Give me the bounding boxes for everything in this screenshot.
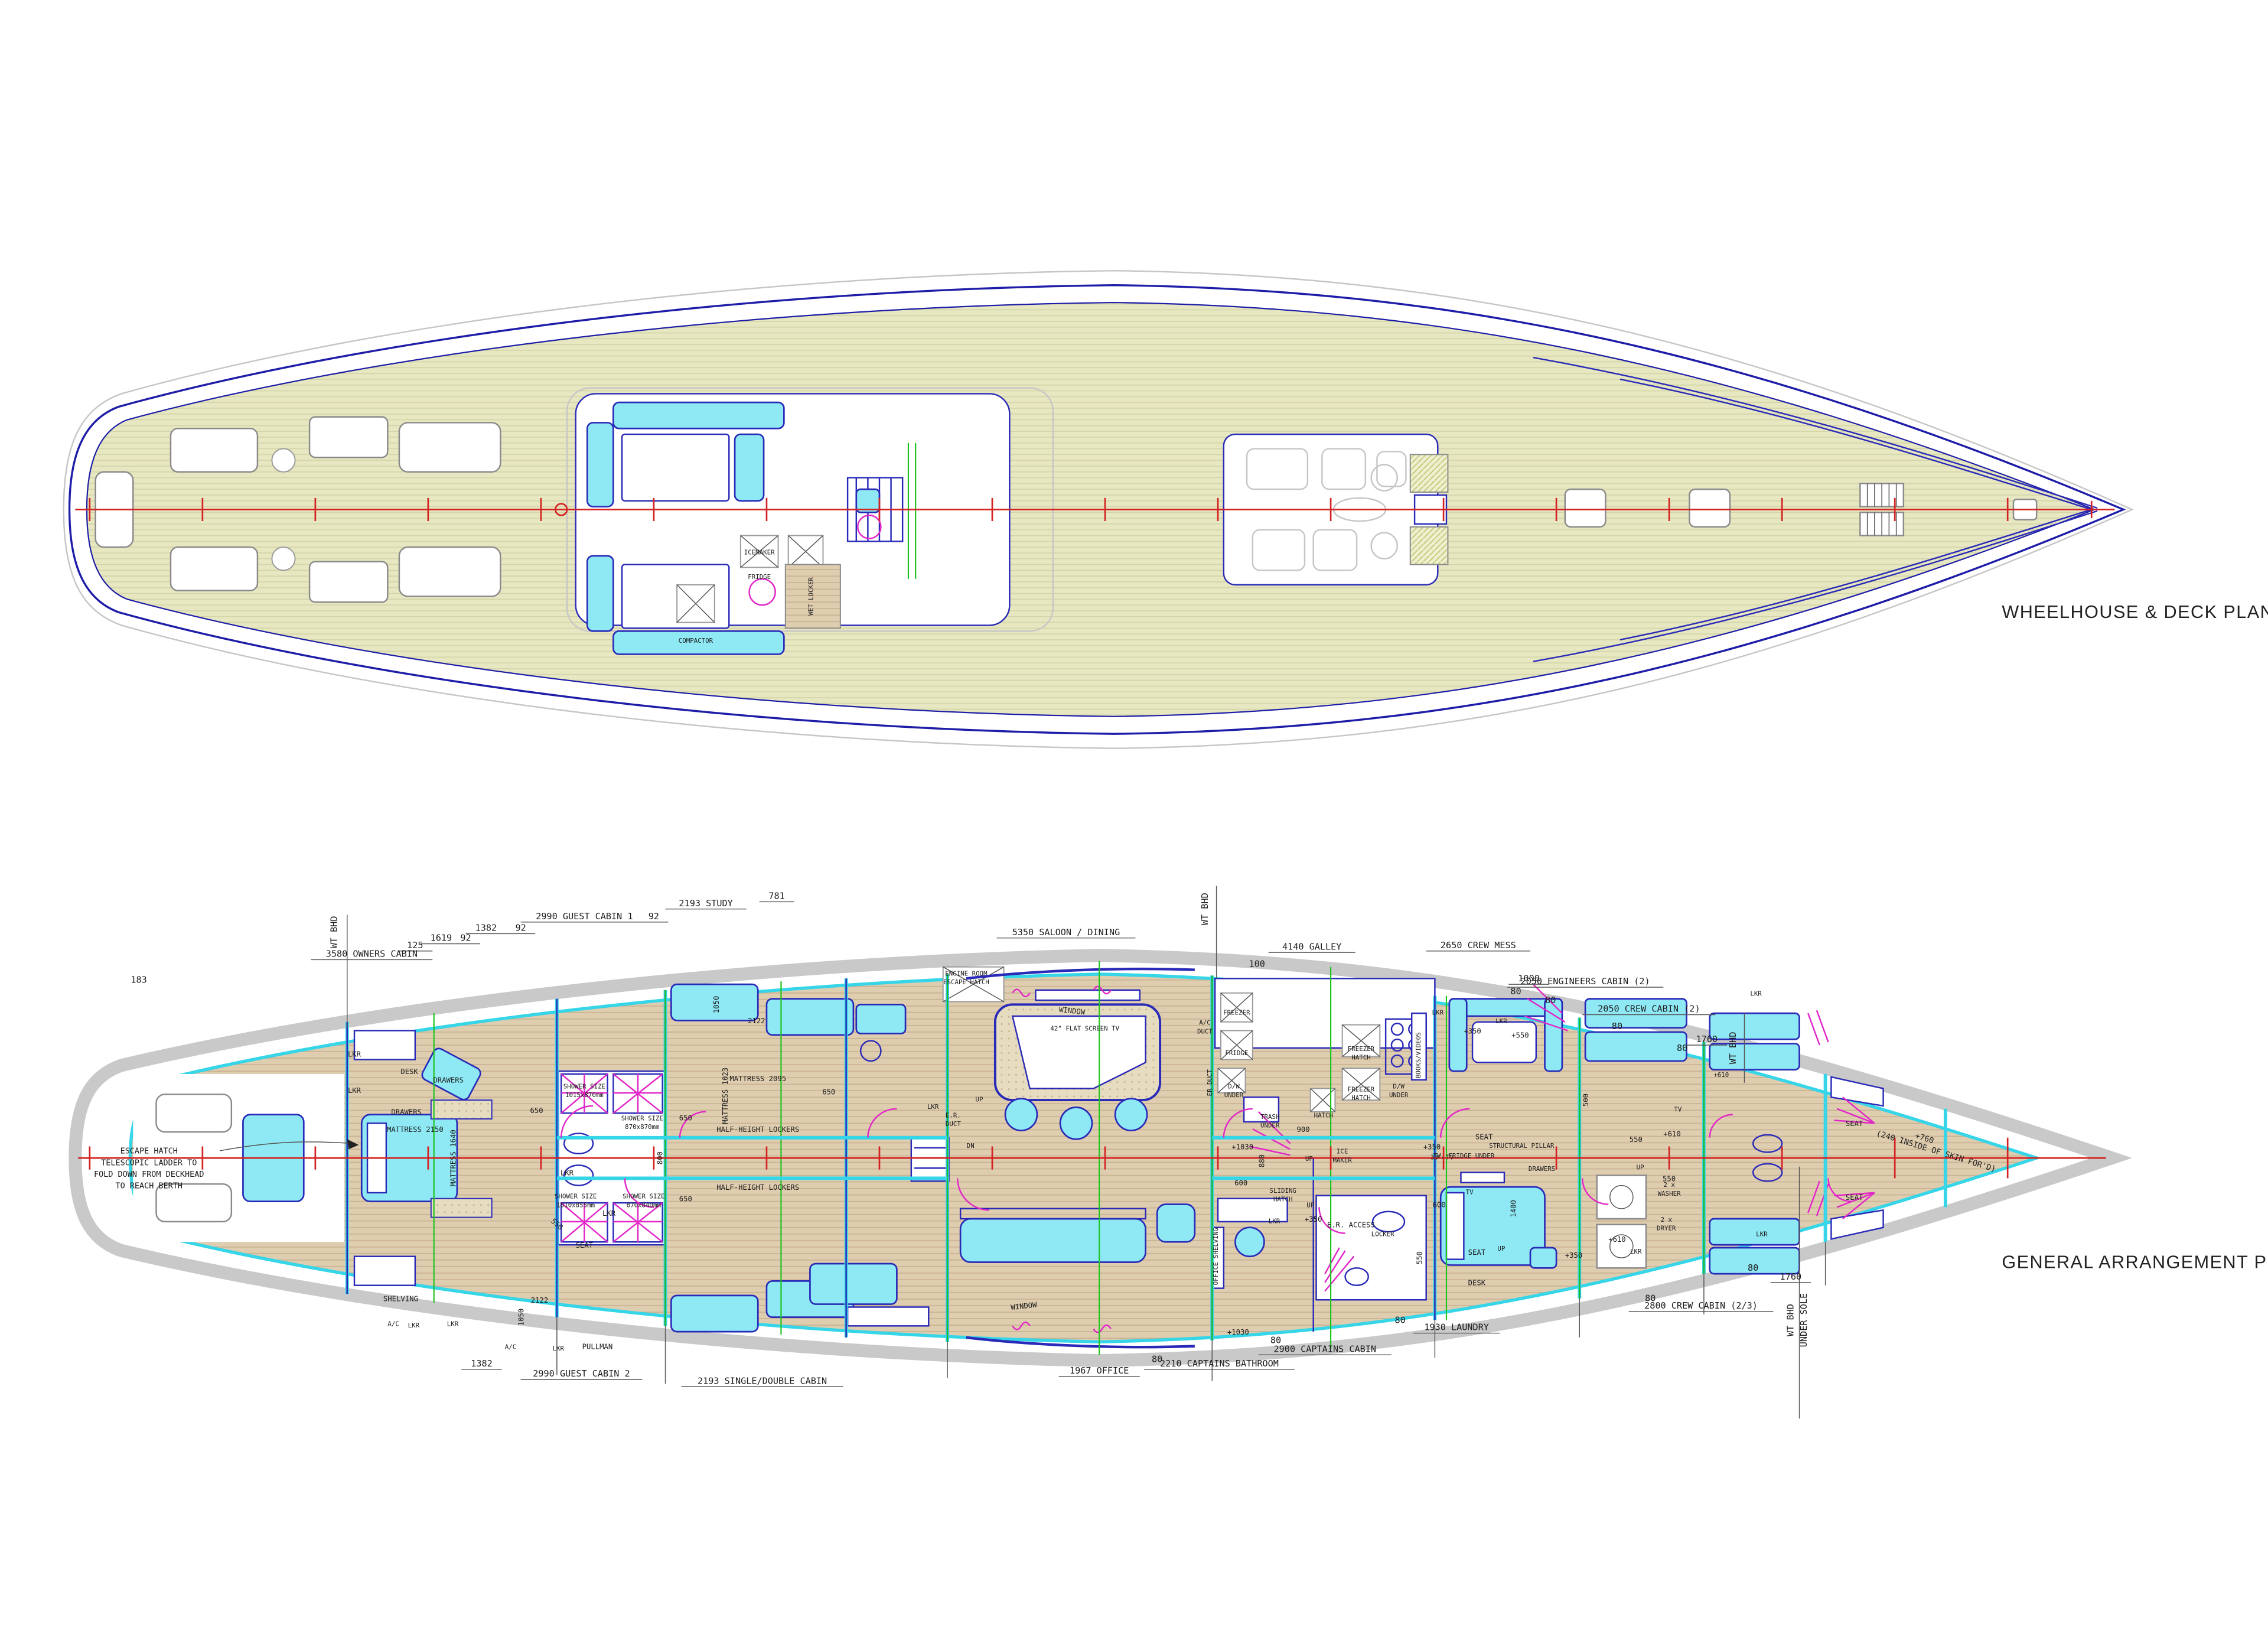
dim-galley: 4140 GALLEY: [1282, 941, 1341, 952]
label-structural-pillar: STRUCTURAL PILLAR: [1489, 1142, 1555, 1150]
label-lkr: LKR: [447, 1320, 459, 1327]
dim-captains-cabin: 2900 CAPTAINS CABIN: [1274, 1343, 1377, 1354]
label-ac-duct-1: A/C: [1199, 1019, 1210, 1027]
dim-crew-cabin: 2050 CREW CABIN (2): [1598, 1004, 1700, 1014]
dim-1382-b: 1382: [471, 1358, 493, 1369]
label-600: 600: [1234, 1179, 1247, 1187]
label-ice-maker-1: ICE: [1337, 1148, 1348, 1156]
dim-wt-bhd-3: WT BHD: [1728, 1031, 1738, 1064]
label-lkr: LKR: [1750, 990, 1762, 998]
dim-office: 1967 OFFICE: [1070, 1365, 1129, 1376]
label-2x-dryer-2: DRYER: [1657, 1225, 1676, 1232]
label-lkr: LKR: [602, 1209, 616, 1218]
label-900: 900: [1296, 1125, 1309, 1134]
label-freezer-hatch-2b: HATCH: [1351, 1094, 1370, 1102]
label-ac: A/C: [387, 1320, 399, 1327]
label-plus-550: +550: [1511, 1031, 1529, 1040]
label-er: E.R.: [946, 1111, 961, 1119]
label-650: 650: [822, 1088, 835, 1096]
label-dw-under-2b: UNDER: [1389, 1091, 1409, 1099]
dim-wt-bhd-under-sole: WT BHD: [1785, 1304, 1796, 1336]
label-trash: TRASH: [1260, 1113, 1279, 1121]
dim-captains-bathroom: 2210 CAPTAINS BATHROOM: [1160, 1358, 1279, 1369]
label-books-videos: BOOKS/VIDEOS: [1415, 1032, 1422, 1078]
dim-wt-bhd-2: WT BHD: [1200, 893, 1210, 925]
label-2x-washer-2: WASHER: [1658, 1190, 1681, 1198]
label-half-height-lockers: HALF-HEIGHT LOCKERS: [716, 1183, 799, 1192]
label-dw-under-2: D/W: [1393, 1082, 1405, 1090]
label-shower-size: SHOWER SIZE: [623, 1193, 664, 1200]
label-shower-dim1: 1015x870mm: [565, 1091, 604, 1099]
label-flat-screen-tv: 42" FLAT SCREEN TV: [1050, 1024, 1119, 1032]
label-seat: SEAT: [1475, 1133, 1493, 1141]
label-plus-610: +610: [1663, 1130, 1680, 1138]
dim-125: 125: [407, 940, 423, 951]
label-locker: LOCKER: [1371, 1230, 1394, 1238]
label-shower-dim4: 870x840mm: [627, 1201, 661, 1209]
dim-study: 2193 STUDY: [679, 898, 732, 909]
label-550: 550: [1630, 1135, 1643, 1144]
label-1050: 1050: [517, 1309, 526, 1326]
dim-guest-cabin-1: 2990 GUEST CABIN 1: [536, 911, 633, 922]
dim-80b: 80: [1545, 995, 1556, 1006]
label-pullman: PULLMAN: [582, 1343, 613, 1351]
label-tv-fridge-under: TV, FRIDGE UNDER: [1433, 1152, 1495, 1160]
label-plus-610: +610: [1608, 1235, 1625, 1244]
dim-183: 183: [131, 975, 146, 985]
general-arrangement-plan: WT BHD 183 3580 OWNERS CABIN 125 1619 92…: [75, 886, 2268, 1418]
label-mattress-2150: MATTRESS 2150: [387, 1125, 444, 1134]
label-lkr: LKR: [1495, 1017, 1507, 1025]
label-freezer: FREEZER: [1223, 1009, 1250, 1017]
label-plus-350: +350: [1464, 1027, 1481, 1035]
ga-plan-title: GENERAL ARRANGEMENT PLAN: [2002, 1252, 2268, 1272]
label-shower-size: SHOWER SIZE: [621, 1114, 663, 1122]
label-650: 650: [679, 1195, 692, 1203]
deck-label-wet-locker: WET LOCKER: [807, 577, 814, 616]
label-up: UP: [975, 1096, 983, 1104]
label-800: 800: [656, 1151, 664, 1164]
label-seat: SEAT: [1846, 1120, 1863, 1128]
label-650: 650: [530, 1107, 543, 1115]
label-seat: SEAT: [1846, 1193, 1863, 1202]
label-fridge: FRIDGE: [1225, 1049, 1248, 1057]
label-lkr: LKR: [348, 1050, 361, 1059]
label-2122: 2122: [531, 1296, 548, 1304]
label-plus-610: +610: [1713, 1071, 1729, 1079]
label-lkr: LKR: [1432, 1009, 1444, 1017]
dim-1382: 1382: [475, 922, 497, 933]
label-er-access: E.R. ACCESS: [1327, 1221, 1375, 1229]
dim-owners-cabin: 3580 OWNERS CABIN: [326, 949, 418, 959]
label-hatch: HATCH: [1314, 1111, 1333, 1119]
dim-crew-mess: 2650 CREW MESS: [1441, 940, 1516, 951]
dim-100: 100: [1249, 959, 1265, 969]
label-freezer-hatch-1: FREEZER: [1348, 1045, 1375, 1053]
label-lkr: LKR: [561, 1169, 574, 1177]
label-650: 650: [679, 1114, 692, 1122]
label-drawers: DRAWERS: [1529, 1165, 1555, 1173]
dim-under-sole: UNDER SOLE: [1798, 1293, 1809, 1347]
label-sliding-hatch-2: HATCH: [1273, 1196, 1292, 1203]
label-ac-duct-2: DUCT: [1197, 1027, 1213, 1035]
label-plus-1030: +1030: [1231, 1143, 1253, 1151]
dim-92b: 92: [515, 922, 526, 933]
label-office-shelving: OFFICE SHELVING: [1212, 1228, 1220, 1285]
label-500: 500: [1582, 1094, 1590, 1107]
label-desk: DESK: [400, 1068, 418, 1076]
dim-single-double: 2193 SINGLE/DOUBLE CABIN: [698, 1375, 827, 1386]
label-lkr: LKR: [1630, 1248, 1642, 1255]
dim-781: 781: [768, 891, 784, 902]
label-shower-dim2: 870x870mm: [625, 1123, 659, 1131]
label-trash-under: UNDER: [1260, 1122, 1280, 1130]
note-escape-hatch-1: ESCAPE HATCH: [120, 1147, 178, 1156]
label-duct: DUCT: [946, 1120, 961, 1128]
label-plus-1030: +1030: [1227, 1328, 1249, 1336]
label-mattress-1640: MATTRESS 1640: [449, 1130, 457, 1186]
dim-engineers-cabin: 2050 ENGINEERS CABIN (2): [1520, 976, 1650, 987]
label-plus-350: +350: [1565, 1251, 1582, 1260]
dim-crew-cabin-23: 2800 CREW CABIN (2/3): [1644, 1300, 1758, 1311]
deck-label-fridge: FRIDGE: [748, 573, 771, 581]
label-600: 600: [1433, 1200, 1446, 1209]
yacht-plans-svg: ICEMAKER FRIDGE COMPACTOR WET LOCKER WHE…: [0, 0, 2268, 1640]
label-2122: 2122: [748, 1017, 765, 1025]
dim-1619: 1619: [431, 933, 452, 943]
label-up: UP: [1637, 1164, 1644, 1172]
dim-80-be: 80: [1748, 1262, 1758, 1273]
label-half-height-lockers: HALF-HEIGHT LOCKERS: [716, 1125, 799, 1134]
label-lkr: LKR: [408, 1322, 420, 1329]
label-seat: SEAT: [1468, 1248, 1486, 1257]
dim-92c: 92: [649, 911, 659, 922]
dim-saloon-dining: 5350 SALOON / DINING: [1012, 927, 1120, 938]
dim-wt-bhd-1: WT BHD: [329, 916, 340, 948]
dim-92a: 92: [460, 933, 471, 943]
dim-80d: 80: [1677, 1043, 1687, 1053]
label-er-duct-v: ER DUCT: [1206, 1069, 1214, 1096]
label-drawers: DRAWERS: [433, 1076, 464, 1085]
label-lkr: LKR: [1269, 1217, 1280, 1225]
label-freezer-hatch-1b: HATCH: [1351, 1053, 1370, 1061]
label-shelving: SHELVING: [383, 1295, 418, 1303]
note-escape-hatch-3: FOLD DOWN FROM DECKHEAD: [94, 1170, 204, 1179]
label-freezer-hatch-2: FREEZER: [1348, 1085, 1375, 1093]
label-2x-washer-1: 2 x: [1663, 1181, 1675, 1189]
label-1400: 1400: [1510, 1200, 1518, 1217]
label-550v: 550: [1415, 1251, 1423, 1264]
label-shower-size: SHOWER SIZE: [563, 1082, 605, 1090]
label-shower-size: SHOWER SIZE: [555, 1193, 597, 1200]
label-mattress-2095: MATTRESS 2095: [729, 1075, 786, 1083]
label-up: UP: [1498, 1245, 1506, 1252]
label-mattress-1023: MATTRESS 1023: [721, 1068, 729, 1124]
cockpit-deckhouse: ICEMAKER FRIDGE COMPACTOR WET LOCKER: [567, 388, 1053, 655]
label-sliding-hatch-1: SLIDING: [1270, 1187, 1296, 1195]
label-shower-dim3: 1010x855mm: [556, 1201, 595, 1209]
note-escape-hatch-2: TELESCOPIC LADDER TO: [101, 1158, 197, 1167]
dim-1760-b: 1760: [1780, 1271, 1802, 1282]
label-ac: A/C: [505, 1343, 516, 1351]
label-engine-room: ENGINE ROOM: [945, 969, 988, 977]
label-lkr: LKR: [1756, 1230, 1768, 1238]
label-dw-under-1b: UNDER: [1224, 1091, 1244, 1099]
deck-plan-title: WHEELHOUSE & DECK PLAN: [2002, 602, 2268, 622]
label-up: UP: [1306, 1201, 1314, 1209]
deck-label-compactor: COMPACTOR: [679, 637, 713, 645]
dim-guest-cabin-2: 2990 GUEST CABIN 2: [533, 1368, 630, 1379]
label-drawers: DRAWERS: [391, 1108, 422, 1117]
label-dw-under-1: D/W: [1228, 1082, 1240, 1090]
label-lkr: LKR: [927, 1103, 939, 1111]
label-desk: DESK: [1468, 1279, 1486, 1287]
label-up: UP: [1305, 1155, 1313, 1163]
label-plus-350: +350: [1305, 1215, 1322, 1224]
dim-80c: 80: [1612, 1021, 1622, 1031]
label-lkr: LKR: [348, 1086, 361, 1095]
dim-80a: 80: [1510, 986, 1521, 997]
wheelhouse-deck-plan: ICEMAKER FRIDGE COMPACTOR WET LOCKER WHE…: [64, 271, 2268, 749]
label-tv: TV: [1466, 1188, 1474, 1196]
label-ice-maker-2: MAKER: [1332, 1156, 1352, 1164]
label-plus-350: +350: [1423, 1143, 1441, 1151]
drawing-sheet: ICEMAKER FRIDGE COMPACTOR WET LOCKER WHE…: [0, 0, 2268, 1640]
label-2x-dryer-1: 2 x: [1661, 1216, 1673, 1224]
label-tv: TV: [1674, 1106, 1682, 1114]
dim-1760-top: 1760: [1696, 1034, 1718, 1044]
label-1050: 1050: [712, 996, 721, 1013]
note-escape-hatch-4: TO REACH BERTH: [115, 1182, 183, 1191]
dim-80-bc: 80: [1394, 1314, 1405, 1325]
label-seat: SEAT: [576, 1241, 594, 1249]
label-er-escape-hatch: ESCAPE HATCH: [943, 978, 989, 986]
label-lkr: LKR: [553, 1345, 565, 1352]
label-dn: DN: [967, 1142, 975, 1150]
deck-label-icemaker: ICEMAKER: [744, 548, 775, 556]
dim-laundry: 1930 LAUNDRY: [1424, 1322, 1489, 1333]
label-880: 880: [1257, 1154, 1266, 1167]
